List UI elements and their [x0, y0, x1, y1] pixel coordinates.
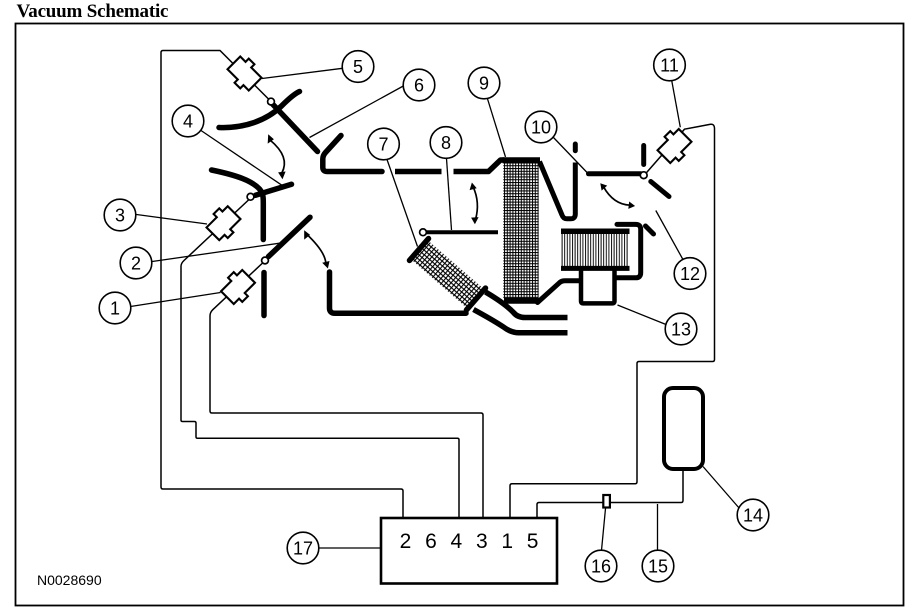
svg-text:2: 2 [131, 254, 141, 274]
svg-text:1: 1 [110, 299, 120, 319]
svg-text:5: 5 [353, 57, 363, 77]
svg-text:6: 6 [425, 530, 437, 553]
svg-text:6: 6 [414, 76, 424, 96]
svg-text:1: 1 [501, 530, 513, 553]
svg-text:16: 16 [591, 557, 611, 577]
svg-text:8: 8 [441, 133, 451, 153]
svg-text:9: 9 [479, 74, 489, 94]
svg-text:13: 13 [671, 320, 691, 340]
svg-text:11: 11 [660, 56, 679, 76]
svg-text:N0028690: N0028690 [37, 572, 102, 588]
svg-text:3: 3 [115, 206, 125, 226]
svg-text:10: 10 [531, 118, 551, 138]
svg-text:3: 3 [476, 530, 488, 553]
svg-text:14: 14 [743, 506, 763, 526]
svg-text:17: 17 [293, 539, 313, 559]
svg-text:5: 5 [527, 530, 539, 553]
svg-text:7: 7 [378, 135, 388, 155]
svg-text:4: 4 [183, 112, 193, 132]
svg-text:2: 2 [400, 530, 412, 553]
svg-text:15: 15 [648, 557, 668, 577]
svg-text:Vacuum Schematic: Vacuum Schematic [17, 1, 169, 22]
svg-text:12: 12 [680, 264, 700, 284]
svg-text:4: 4 [451, 530, 463, 553]
